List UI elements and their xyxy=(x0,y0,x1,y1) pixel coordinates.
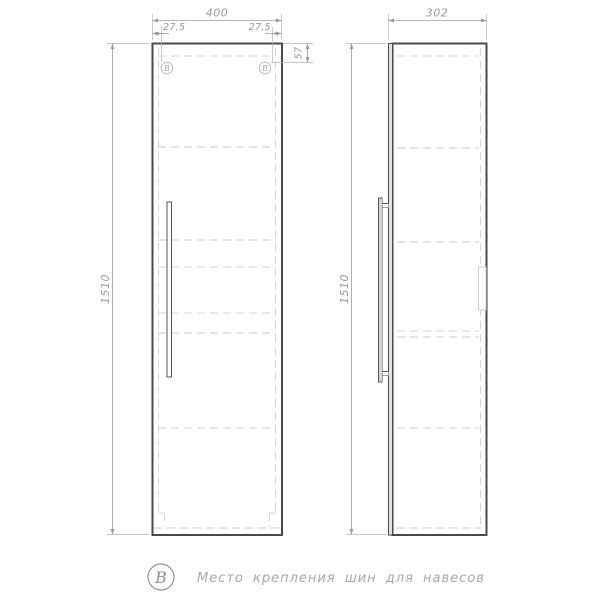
side-view-door-panel xyxy=(389,44,393,536)
mount-marker-right-label: B xyxy=(261,64,268,73)
cabinet-drawing: B B 400 27,5 27,5 xyxy=(0,0,600,600)
dim-front-mount-drop-value: 57 xyxy=(294,47,305,60)
legend-symbol-letter: B xyxy=(154,568,167,587)
front-view-outline xyxy=(153,44,283,536)
mount-marker-right: B xyxy=(259,62,271,74)
dim-front-width-value: 400 xyxy=(206,7,229,20)
front-view: B B 400 27,5 27,5 xyxy=(99,7,313,536)
dim-front-offset-right-value: 27,5 xyxy=(249,22,271,33)
dim-side-depth-value: 302 xyxy=(426,7,449,20)
handle-stem-top xyxy=(382,204,389,208)
dim-side-depth: 302 xyxy=(389,7,487,41)
side-view: 302 1510 xyxy=(338,7,487,536)
mount-marker-left: B xyxy=(161,62,173,74)
handle-bar-side xyxy=(379,198,383,382)
dim-front-height: 1510 xyxy=(99,44,149,535)
legend: B Место крепления шин для навесов xyxy=(148,564,485,590)
side-view-rail-groove xyxy=(479,267,487,310)
technical-drawing-canvas: B B 400 27,5 27,5 xyxy=(0,0,600,600)
dim-front-height-value: 1510 xyxy=(99,274,112,304)
dim-side-height-value: 1510 xyxy=(338,274,351,304)
side-view-outline xyxy=(393,44,487,536)
legend-text: Место крепления шин для навесов xyxy=(197,571,485,586)
door-handle-side xyxy=(379,198,389,382)
dim-front-offset-left-value: 27,5 xyxy=(163,22,185,33)
mount-marker-left-label: B xyxy=(163,64,170,73)
handle-stem-bottom xyxy=(382,372,389,376)
door-handle-front xyxy=(167,202,172,377)
